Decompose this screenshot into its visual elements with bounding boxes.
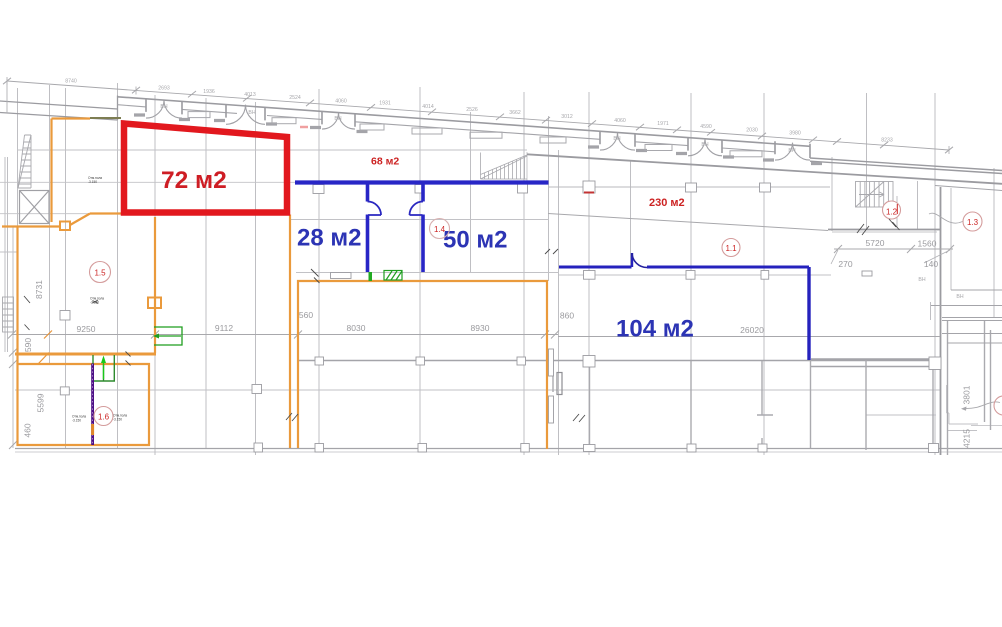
svg-text:9112: 9112 <box>215 323 234 333</box>
svg-text:-3.150: -3.150 <box>113 417 122 421</box>
svg-text:1.1: 1.1 <box>725 244 737 253</box>
svg-text:2524: 2524 <box>289 95 301 101</box>
svg-text:-3.150: -3.150 <box>88 180 97 184</box>
svg-text:5720: 5720 <box>866 238 885 248</box>
svg-text:ВН: ВН <box>701 142 708 148</box>
svg-text:-3.150: -3.150 <box>72 418 81 422</box>
svg-text:590: 590 <box>23 338 33 352</box>
svg-text:8030: 8030 <box>347 323 366 333</box>
svg-text:8740: 8740 <box>65 79 77 85</box>
svg-text:50 м2: 50 м2 <box>443 227 507 254</box>
svg-text:ВН: ВН <box>956 294 963 300</box>
svg-text:1.6: 1.6 <box>98 413 110 422</box>
svg-text:1.5: 1.5 <box>94 269 106 278</box>
svg-text:560: 560 <box>299 310 313 320</box>
svg-text:4590: 4590 <box>700 124 712 130</box>
svg-text:4013: 4013 <box>244 92 256 98</box>
svg-text:68 м2: 68 м2 <box>371 156 399 168</box>
svg-text:26020: 26020 <box>740 325 764 335</box>
svg-text:ВН: ВН <box>248 110 255 116</box>
svg-text:3801: 3801 <box>962 385 972 404</box>
svg-text:28 м2: 28 м2 <box>297 225 361 252</box>
svg-text:860: 860 <box>560 311 574 321</box>
svg-text:1931: 1931 <box>379 101 391 107</box>
svg-text:ВН: ВН <box>160 104 167 110</box>
svg-text:ВН: ВН <box>918 277 925 283</box>
svg-text:5599: 5599 <box>36 393 46 412</box>
svg-text:230 м2: 230 м2 <box>649 197 685 209</box>
svg-text:8731: 8731 <box>34 280 44 299</box>
svg-text:4060: 4060 <box>614 118 626 124</box>
svg-text:3012: 3012 <box>561 114 573 120</box>
svg-text:2526: 2526 <box>466 107 478 113</box>
svg-text:3980: 3980 <box>789 131 801 137</box>
svg-text:1936: 1936 <box>203 89 215 95</box>
svg-text:1.3: 1.3 <box>967 218 979 227</box>
svg-text:2030: 2030 <box>746 128 758 134</box>
svg-text:72 м2: 72 м2 <box>161 167 227 194</box>
svg-text:9250: 9250 <box>77 324 96 334</box>
svg-text:ВН: ВН <box>334 116 341 122</box>
svg-text:460: 460 <box>23 423 33 437</box>
svg-text:8930: 8930 <box>471 323 490 333</box>
svg-text:ВН: ВН <box>788 148 795 154</box>
svg-text:1560: 1560 <box>918 239 937 249</box>
svg-text:ВН: ВН <box>613 136 620 142</box>
svg-text:4215: 4215 <box>962 429 972 448</box>
svg-text:140: 140 <box>924 259 938 269</box>
svg-text:1.4: 1.4 <box>434 225 446 234</box>
svg-text:270: 270 <box>838 259 852 269</box>
svg-text:4014: 4014 <box>422 104 434 110</box>
svg-text:1.2: 1.2 <box>886 208 898 217</box>
svg-text:8233: 8233 <box>881 138 893 144</box>
svg-text:4060: 4060 <box>335 99 347 105</box>
svg-text:104 м2: 104 м2 <box>616 316 694 343</box>
svg-text:1971: 1971 <box>657 121 669 127</box>
svg-text:3662: 3662 <box>509 110 521 116</box>
svg-text:2693: 2693 <box>158 86 170 92</box>
